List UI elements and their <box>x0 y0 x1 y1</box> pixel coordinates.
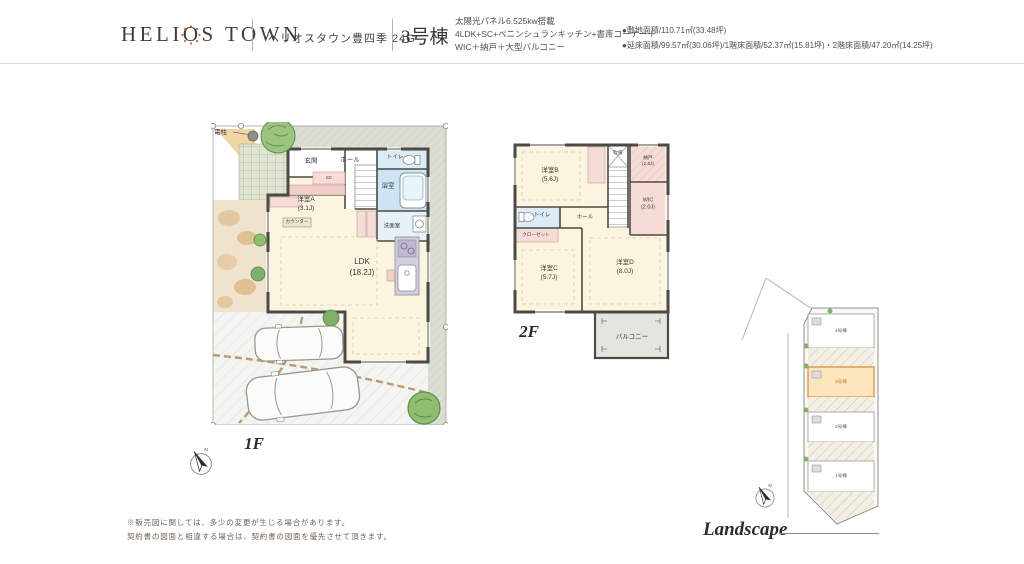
site-area: ●敷地面積/110.71㎡(33.48坪) <box>622 24 933 39</box>
landscape-underline <box>779 533 879 534</box>
floor2-label: 2F <box>519 322 539 342</box>
building-number: 3号棟 <box>401 22 449 49</box>
room-label-washroom: 洗面室 <box>384 223 401 230</box>
tree-icon <box>261 122 295 153</box>
toilet-fixture-1f <box>403 156 420 165</box>
room-label-void: 吹抜 <box>613 150 622 156</box>
room-label-roomA: 洋室A (3.1J) <box>297 196 314 214</box>
room-label-roomB: 洋室B (5.6J) <box>541 167 558 185</box>
site-gray-band-right <box>428 126 446 425</box>
road-line-1 <box>742 278 766 340</box>
compass-n-1f: N <box>204 447 207 453</box>
lot-label-3: 3号棟 <box>835 379 847 385</box>
room-label-toilet-1f: トイレ <box>387 154 404 161</box>
disclaimer-line-2: 契約書の図面と相違する場合は、契約書の図面を優先させて頂きます。 <box>127 531 392 542</box>
floor-area: ●延床面積/99.57㎡(30.06坪)/1階床面積/52.37㎡(15.81坪… <box>622 39 933 54</box>
header-divider-2 <box>392 19 393 51</box>
room-label-hall-1f: ホール <box>340 157 360 166</box>
floor1-label: 1F <box>244 434 264 454</box>
road-line-2 <box>766 278 812 309</box>
tree-icon-2 <box>408 392 440 424</box>
room-label-wic: WIC (2.0J) <box>641 198 655 213</box>
room-label-hall-2f: ホール <box>577 214 594 221</box>
room-label-toilet-2f: トイレ <box>534 212 551 219</box>
landscape-label: Landscape <box>703 519 787 541</box>
compass-n-landscape: N <box>768 483 771 489</box>
room-label-sc: SC <box>326 175 332 181</box>
room-label-bath: 浴室 <box>382 183 395 192</box>
room-label-genkan: 玄関 <box>305 158 318 167</box>
kitchen-counter <box>395 237 419 295</box>
room-label-closet-2f: クローゼット <box>522 232 550 238</box>
flyer-page: HELIO S TOWN ヘリオスタウン豊四季 24G 3号棟 太陽光パネル6.… <box>0 0 1024 564</box>
disclaimer-line-1: ※販売図に関しては、多少の変更が生じる場合があります。 <box>127 517 350 528</box>
sliding-closet <box>288 185 345 195</box>
bathtub <box>400 173 426 208</box>
washing-machine <box>413 216 426 232</box>
header-divider-1 <box>252 19 253 51</box>
lot-label-2: 2号棟 <box>835 424 847 430</box>
lot-label-1: 1号棟 <box>835 473 847 479</box>
pole-label: 電柱 <box>214 126 227 136</box>
floor1-plan <box>211 122 448 425</box>
lot-1-drive <box>808 492 874 523</box>
lot-3-drive <box>808 397 874 412</box>
lot-2-drive <box>808 442 874 461</box>
area-block: ●敷地面積/110.71㎡(33.48坪) ●延床面積/99.57㎡(30.06… <box>622 24 933 54</box>
room-label-roomD: 洋室D (8.0J) <box>616 259 634 277</box>
lot-label-4: 4号棟 <box>835 328 847 334</box>
compass-icon-1f <box>186 448 216 485</box>
lot-4-drive <box>808 348 874 367</box>
room-label-counter: カウンター <box>286 219 309 225</box>
logo-text-1: HELI <box>121 22 183 47</box>
compass-icon-landscape <box>752 484 778 517</box>
header-rule <box>0 63 1024 64</box>
room-label-roomC: 洋室C (5.7J) <box>540 265 558 283</box>
roomB-closet <box>588 147 605 183</box>
project-name: ヘリオスタウン豊四季 24G <box>268 30 416 46</box>
bush-icon <box>323 310 339 326</box>
utility-pole-icon <box>248 131 258 141</box>
car-1 <box>254 322 343 364</box>
toilet-fixture-2f <box>519 213 534 222</box>
logo-sun-o: O <box>183 22 202 47</box>
stairs-1f <box>355 165 377 209</box>
room-label-balcony: バルコニー <box>616 334 648 343</box>
room-label-nando: 納戸 (2.6J) <box>642 155 654 167</box>
room-label-ldk: LDK (18.2J) <box>350 257 375 279</box>
